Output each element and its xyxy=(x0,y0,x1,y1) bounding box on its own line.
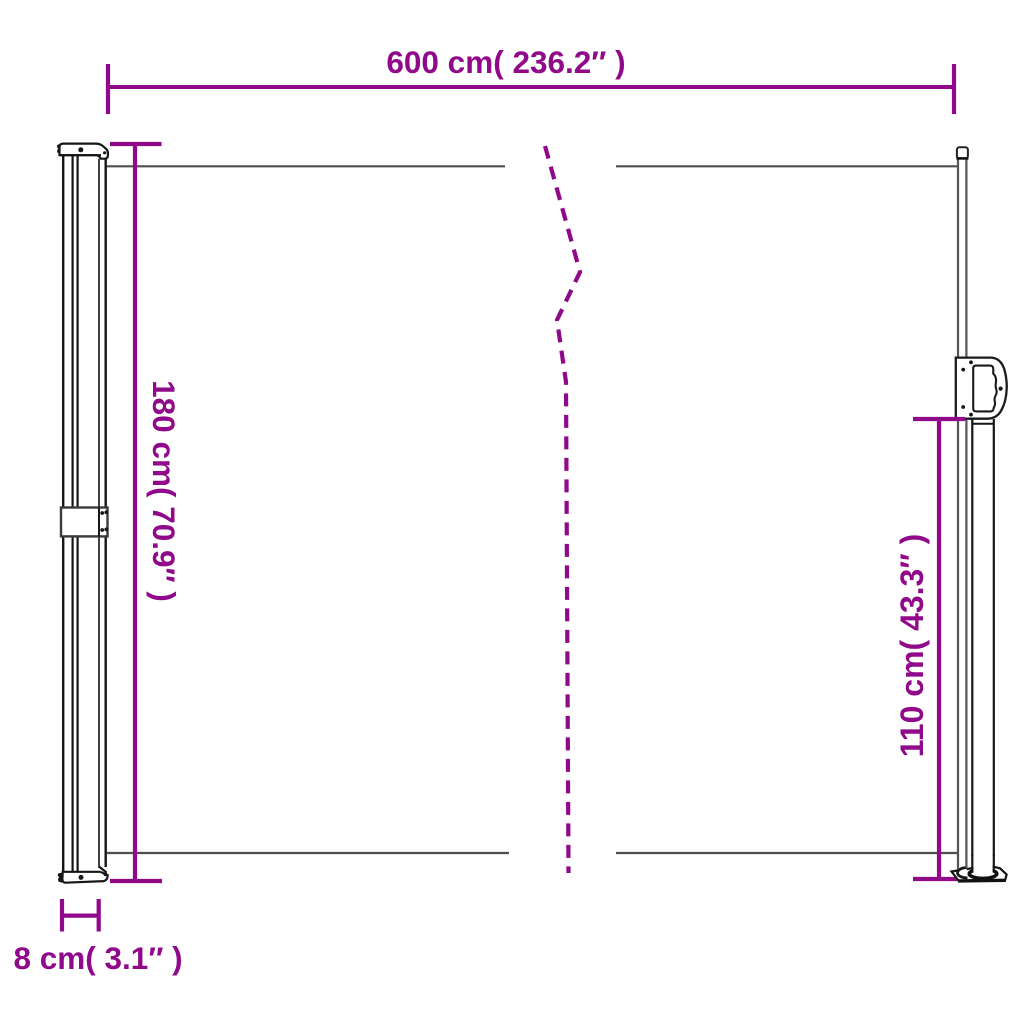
svg-text:8 cm( 3.1″ ): 8 cm( 3.1″ ) xyxy=(14,940,183,976)
svg-text:180 cm( 70.9″ ): 180 cm( 70.9″ ) xyxy=(146,380,182,602)
svg-text:110 cm( 43.3″ ): 110 cm( 43.3″ ) xyxy=(894,534,930,757)
svg-text:600 cm( 236.2″ ): 600 cm( 236.2″ ) xyxy=(386,44,625,80)
